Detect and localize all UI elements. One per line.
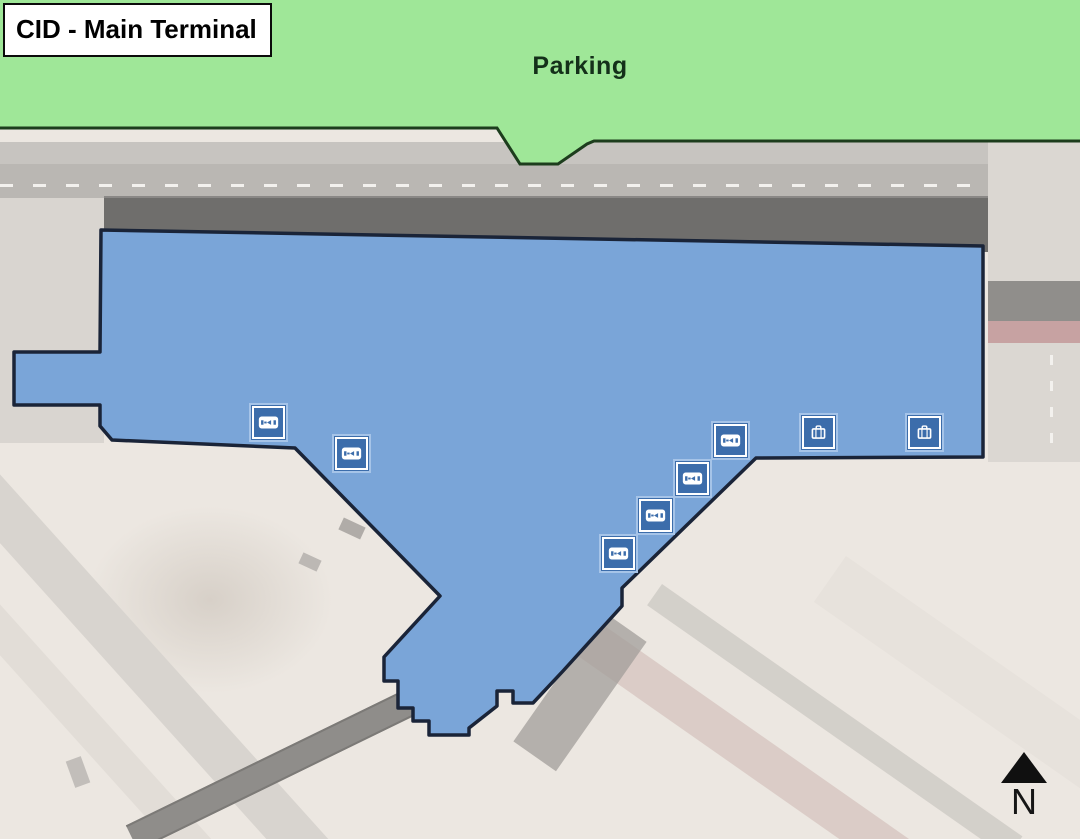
- compass: N: [998, 752, 1050, 820]
- gate-icon[interactable]: [676, 462, 709, 495]
- terminal-building-shape[interactable]: [14, 230, 983, 735]
- baggage-claim-icon[interactable]: [802, 416, 835, 449]
- gate-icon[interactable]: [335, 437, 368, 470]
- north-arrow-icon: [1001, 752, 1047, 783]
- parking-zone-label: Parking: [500, 52, 660, 81]
- page-title: CID - Main Terminal: [3, 3, 272, 57]
- gate-icon[interactable]: [602, 537, 635, 570]
- north-label: N: [998, 784, 1050, 820]
- gate-icon[interactable]: [252, 406, 285, 439]
- gate-icon[interactable]: [714, 424, 747, 457]
- baggage-claim-icon[interactable]: [908, 416, 941, 449]
- gate-icon[interactable]: [639, 499, 672, 532]
- airport-terminal-map: Parking CID - Main Terminal N: [0, 0, 1080, 839]
